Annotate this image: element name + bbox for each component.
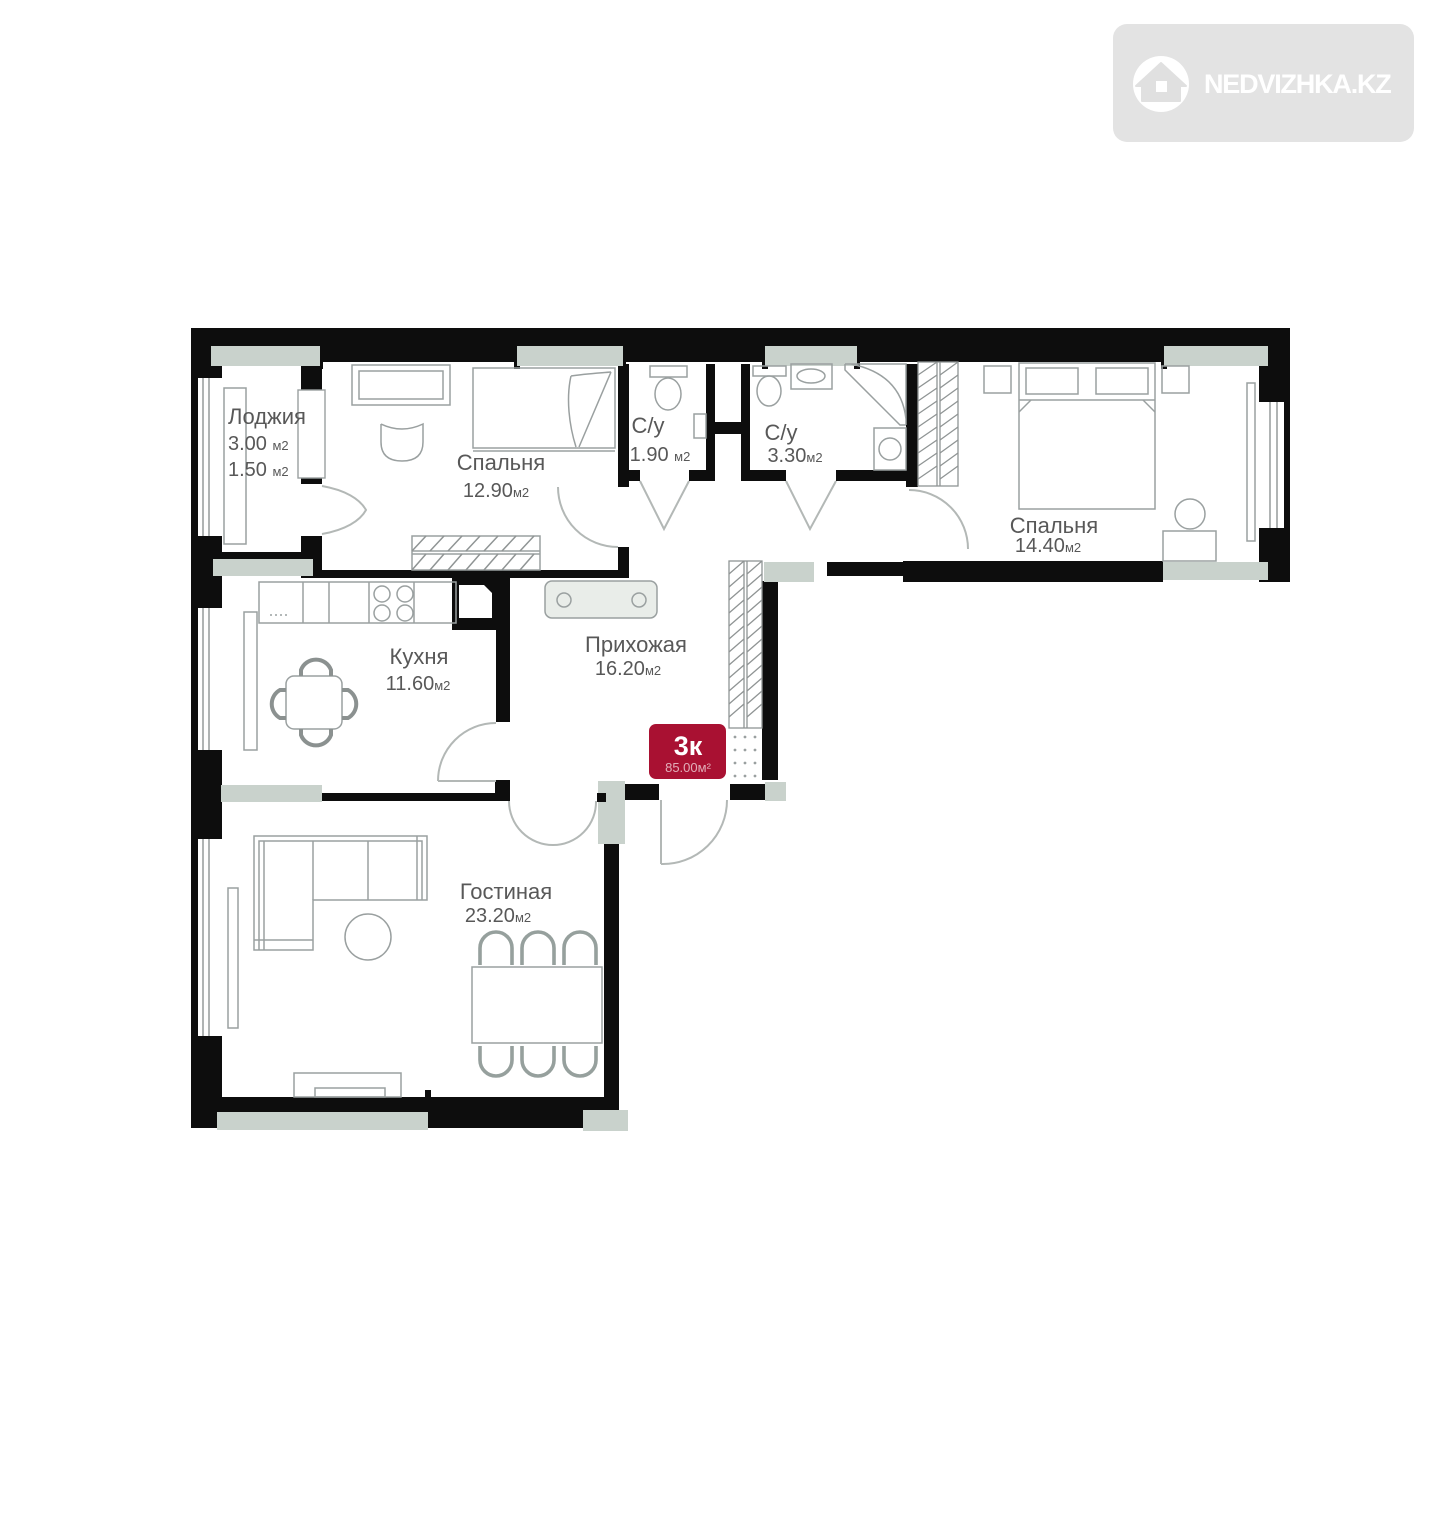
svg-text:Гостиная: Гостиная	[460, 879, 552, 904]
svg-text:Прихожая: Прихожая	[585, 632, 687, 657]
svg-text:С/у: С/у	[632, 413, 665, 438]
svg-text:Спальня: Спальня	[457, 450, 545, 475]
svg-text:NEDVIZHKA.KZ: NEDVIZHKA.KZ	[1204, 69, 1391, 99]
svg-text:Кухня: Кухня	[390, 644, 449, 669]
svg-text:85.00м²: 85.00м²	[665, 760, 711, 775]
svg-text:Лоджия: Лоджия	[228, 404, 306, 429]
svg-text:3к: 3к	[674, 731, 703, 761]
svg-text:С/у: С/у	[765, 420, 798, 445]
